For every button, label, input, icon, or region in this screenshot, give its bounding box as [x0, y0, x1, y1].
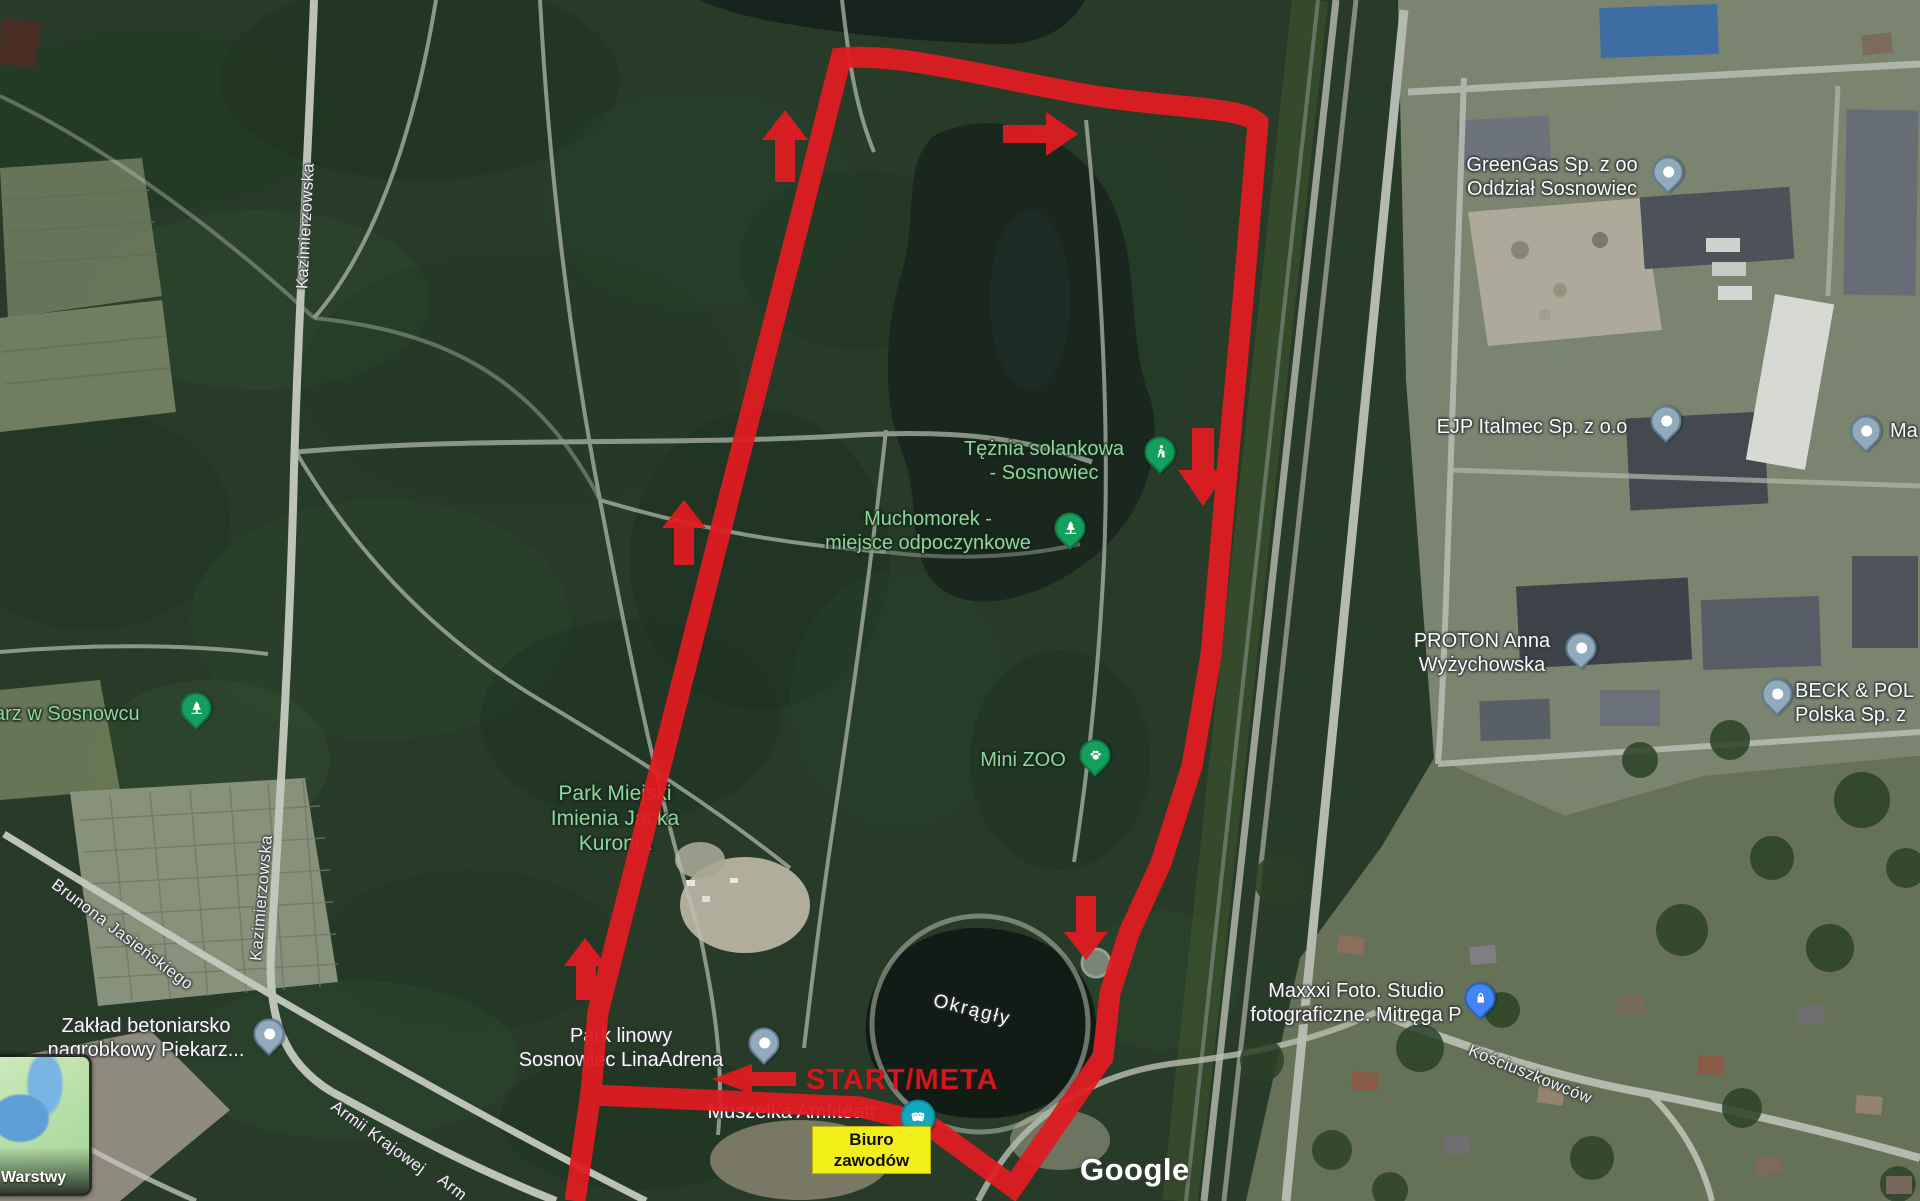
hiker-icon — [1152, 444, 1169, 461]
poi-line: Kuronia — [579, 832, 651, 857]
office-line: zawodów — [834, 1150, 910, 1171]
theater-masks-icon — [909, 1108, 928, 1127]
poi-line: arz w Sosnowcu — [0, 702, 140, 726]
poi-line: EJP Italmec Sp. z o.o — [1437, 415, 1628, 439]
poi-line: Park linowy — [570, 1024, 672, 1048]
pin-dot-icon — [1769, 686, 1785, 702]
cemetery — [70, 778, 338, 1006]
poi-line: Muszelka Amfiteatr — [708, 1100, 877, 1124]
office-line: Biuro — [849, 1129, 893, 1150]
poi-label-muchomorek[interactable]: Muchomorek - miejsce odpoczynkowe — [825, 507, 1031, 555]
pin-dot-icon — [1658, 413, 1674, 429]
poi-line: Mini ZOO — [980, 748, 1066, 772]
race-office-label: Biuro zawodów — [812, 1126, 931, 1174]
poi-label-mini-zoo[interactable]: Mini ZOO — [980, 748, 1066, 772]
poi-line: Zakład betoniarsko — [62, 1014, 231, 1038]
poi-label-muszelka[interactable]: Muszelka Amfiteatr — [708, 1100, 877, 1124]
pin-dot-icon — [1858, 423, 1874, 439]
poi-line: Muchomorek - — [864, 507, 992, 531]
poi-line: Ma — [1890, 419, 1918, 443]
poi-line: fotograficzne. Mitręga P — [1250, 1003, 1461, 1027]
poi-line: miejsce odpoczynkowe — [825, 531, 1031, 555]
bag-icon — [1472, 990, 1489, 1007]
poi-line: Tężnia solankowa — [964, 437, 1124, 461]
poi-label-proton[interactable]: PROTON Anna Wyżychowska — [1414, 629, 1550, 677]
poi-label-greengas[interactable]: GreenGas Sp. z oo Oddział Sosnowiec — [1466, 153, 1637, 201]
poi-label-maxxxi[interactable]: Maxxxi Foto. Studio fotograficzne. Mitrę… — [1250, 979, 1461, 1027]
poi-label-ma-partial[interactable]: Ma — [1890, 419, 1918, 443]
paw-icon — [1087, 747, 1104, 764]
pin-dot-icon — [261, 1026, 277, 1042]
poi-label-beck[interactable]: BECK & POL Polska Sp. z — [1795, 679, 1914, 727]
start-meta-label: START/META — [806, 1064, 999, 1097]
poi-line: Polska Sp. z — [1795, 703, 1906, 727]
tree-icon — [1062, 520, 1079, 537]
poi-line: Park Miejski — [558, 781, 671, 806]
pin-dot-icon — [1573, 640, 1589, 656]
poi-line: Imienia Jacka — [551, 806, 679, 831]
poi-line: Sosnowiec LinaAdrena — [519, 1048, 724, 1072]
poi-line: - Sosnowiec — [990, 461, 1099, 485]
poi-line: Maxxxi Foto. Studio — [1268, 979, 1444, 1003]
layers-button[interactable]: Warstwy — [0, 1054, 92, 1196]
poi-line: BECK & POL — [1795, 679, 1914, 703]
layers-label: Warstwy — [1, 1169, 66, 1187]
poi-label-teznia[interactable]: Tężnia solankowa - Sosnowiec — [964, 437, 1124, 485]
poi-line: GreenGas Sp. z oo — [1466, 153, 1637, 177]
tree-icon — [188, 700, 205, 717]
google-logo[interactable]: Google — [1080, 1152, 1190, 1188]
poi-label-cmentarz-partial[interactable]: arz w Sosnowcu — [0, 702, 140, 726]
map-screenshot: Kazimierzowska Kazimierzowska Brunona Ja… — [0, 0, 1920, 1201]
poi-line: PROTON Anna — [1414, 629, 1550, 653]
poi-line: Oddział Sosnowiec — [1467, 177, 1637, 201]
poi-label-ejp-italmec[interactable]: EJP Italmec Sp. z o.o — [1437, 415, 1628, 439]
pin-dot-icon — [1660, 164, 1676, 180]
poi-label-park-miejski[interactable]: Park Miejski Imienia Jacka Kuronia — [551, 781, 679, 857]
poi-line: Wyżychowska — [1419, 653, 1546, 677]
poi-label-park-linowy[interactable]: Park linowy Sosnowiec LinaAdrena — [519, 1024, 724, 1072]
pin-dot-icon — [756, 1035, 772, 1051]
